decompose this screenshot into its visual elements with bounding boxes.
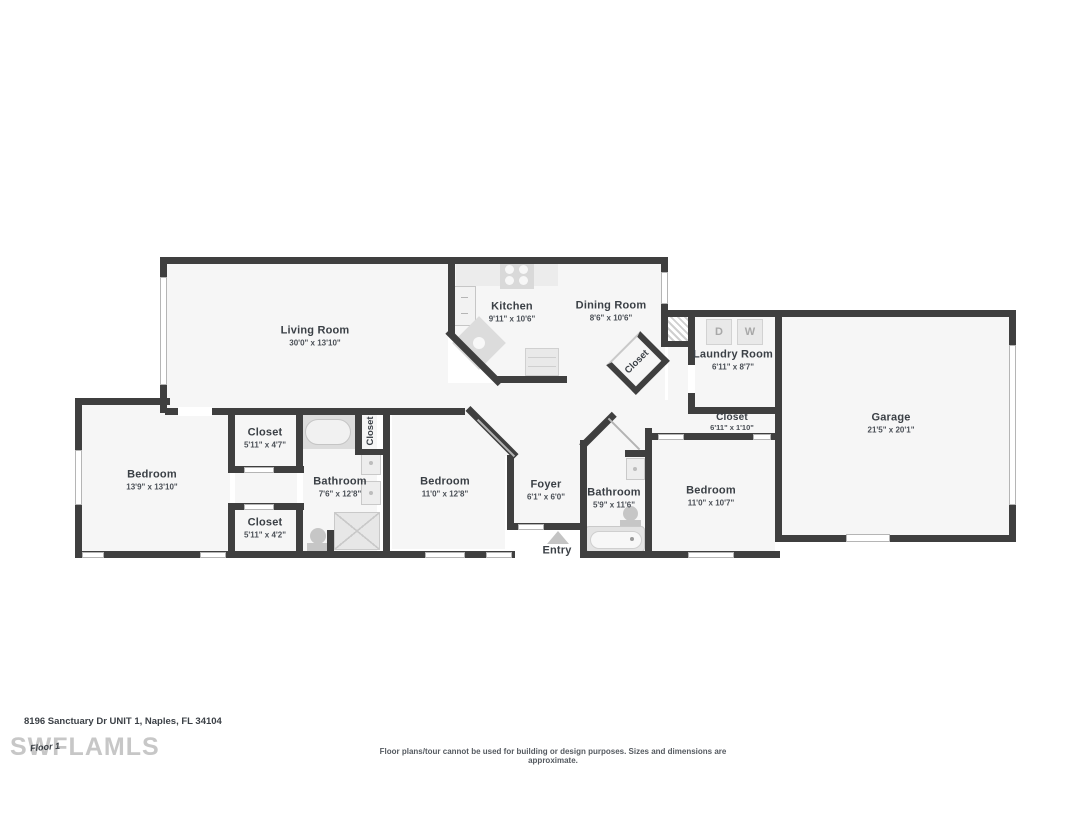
room-dims: 8'6" x 10'6": [576, 313, 647, 322]
door-opening: [178, 407, 212, 416]
wall: [228, 503, 235, 558]
room-name: Closet: [244, 427, 286, 440]
property-address: 8196 Sanctuary Dr UNIT 1, Naples, FL 341…: [24, 716, 222, 727]
room-dims: 5'9" x 11'6": [587, 500, 641, 509]
closet-door: [658, 434, 684, 440]
rotated-closet-label: Closet: [622, 347, 650, 375]
wall: [775, 535, 1016, 542]
window: [661, 272, 668, 304]
wall: [160, 257, 167, 279]
disclaimer-text: Floor plans/tour cannot be used for buil…: [373, 747, 733, 765]
room-label-bedroom-left: Bedroom 13'9" x 13'10": [126, 469, 177, 492]
room-name: Bedroom: [686, 485, 736, 498]
room-name: Laundry Room: [693, 349, 773, 362]
wall: [327, 530, 334, 556]
room-name: Bedroom: [126, 469, 177, 482]
kitchen-counter-2: [525, 348, 559, 376]
wall: [775, 317, 782, 542]
wall: [580, 440, 587, 558]
closet-door: [244, 504, 274, 510]
wall: [775, 310, 1016, 317]
wall: [661, 314, 668, 346]
closet-door: [753, 434, 771, 440]
garage-door: [846, 534, 890, 542]
room-label-foyer: Foyer 6'1" x 6'0": [527, 479, 565, 502]
room-label-living-room: Living Room 30'0" x 13'10": [281, 325, 350, 348]
room-label-bathroom-2: Bathroom 5'9" x 11'6": [587, 487, 641, 510]
shower: [334, 512, 380, 550]
window: [75, 450, 82, 505]
room-dims: 6'11" x 8'7": [693, 362, 773, 371]
wall: [507, 455, 514, 530]
room-name: Kitchen: [489, 301, 536, 314]
bathtub: [305, 419, 351, 445]
room-name: Closet: [365, 416, 376, 445]
room-name: Dining Room: [576, 300, 647, 313]
closet-door: [244, 467, 274, 473]
window: [200, 552, 226, 558]
room-name: Bathroom: [587, 487, 641, 500]
room-dims: 6'11" x 1'10": [710, 423, 754, 431]
room-dims: 5'11" x 4'7": [244, 440, 286, 449]
room-label-bedroom-middle: Bedroom 11'0" x 12'8": [420, 476, 470, 499]
wall: [448, 264, 455, 334]
wall: [580, 551, 780, 558]
room-name: Closet: [710, 413, 754, 424]
stove-burner-icon: [519, 265, 528, 274]
room-label-garage: Garage 21'5" x 20'1": [868, 412, 915, 435]
window: [688, 552, 734, 558]
window: [1009, 345, 1016, 505]
window: [160, 277, 167, 385]
room-dims: 7'6" x 12'8": [313, 489, 367, 498]
room-name: Closet: [244, 517, 286, 530]
wall: [160, 257, 668, 264]
wall: [383, 408, 390, 558]
dryer-label: D: [715, 326, 723, 338]
room-name: Bedroom: [420, 476, 470, 489]
room-dims: 13'9" x 13'10": [126, 482, 177, 491]
room-label-closet-right: Closet 6'11" x 1'10": [710, 413, 754, 431]
room-name: Living Room: [281, 325, 350, 338]
wall: [75, 398, 170, 405]
washer: W: [737, 319, 763, 345]
room-dims: 11'0" x 12'8": [420, 489, 470, 498]
room-name: Foyer: [527, 479, 565, 492]
bathtub: [585, 526, 645, 552]
wall: [497, 376, 567, 383]
refrigerator: [452, 286, 476, 326]
stove-burner-icon: [505, 265, 514, 274]
room-label-bathroom-master: Bathroom 7'6" x 12'8": [313, 476, 367, 499]
room-dims: 11'0" x 10'7": [686, 498, 736, 507]
entry-label: Entry: [542, 545, 571, 558]
stove-burner-icon: [519, 276, 528, 285]
entry-text: Entry: [542, 545, 571, 558]
room-name: Bathroom: [313, 476, 367, 489]
washer-label: W: [745, 326, 755, 338]
wall: [661, 310, 781, 317]
wall: [296, 503, 303, 558]
wall: [160, 385, 167, 413]
window: [425, 552, 465, 558]
room-dims: 30'0" x 13'10": [281, 338, 350, 347]
room-label-closet-top: Closet 5'11" x 4'7": [244, 427, 286, 450]
stove-burner-icon: [505, 276, 514, 285]
window: [486, 552, 512, 558]
room-dims: 6'1" x 6'0": [527, 492, 565, 501]
wall: [228, 408, 235, 473]
closet-vertical-label: Closet: [360, 416, 378, 445]
room-dims: 5'11" x 4'2": [244, 530, 286, 539]
entry-arrow-icon: [547, 531, 569, 544]
toilet: [310, 528, 326, 544]
entry-door: [518, 524, 544, 530]
room-label-laundry-room: Laundry Room 6'11" x 8'7": [693, 349, 773, 372]
room-dims: 9'11" x 10'6": [489, 314, 536, 323]
wall: [645, 428, 652, 558]
room-label-dining-room: Dining Room 8'6" x 10'6": [576, 300, 647, 323]
room-label-closet-bottom: Closet 5'11" x 4'2": [244, 517, 286, 540]
room-label-kitchen: Kitchen 9'11" x 10'6": [489, 301, 536, 324]
floor-plan: D W Closet: [0, 0, 1086, 814]
room-label-bedroom-right: Bedroom 11'0" x 10'7": [686, 485, 736, 508]
room-name: Garage: [868, 412, 915, 425]
wall: [296, 411, 303, 473]
stove: [500, 261, 534, 289]
dryer: D: [706, 319, 732, 345]
window: [82, 552, 104, 558]
sink: [626, 458, 645, 480]
room-dims: 21'5" x 20'1": [868, 425, 915, 434]
